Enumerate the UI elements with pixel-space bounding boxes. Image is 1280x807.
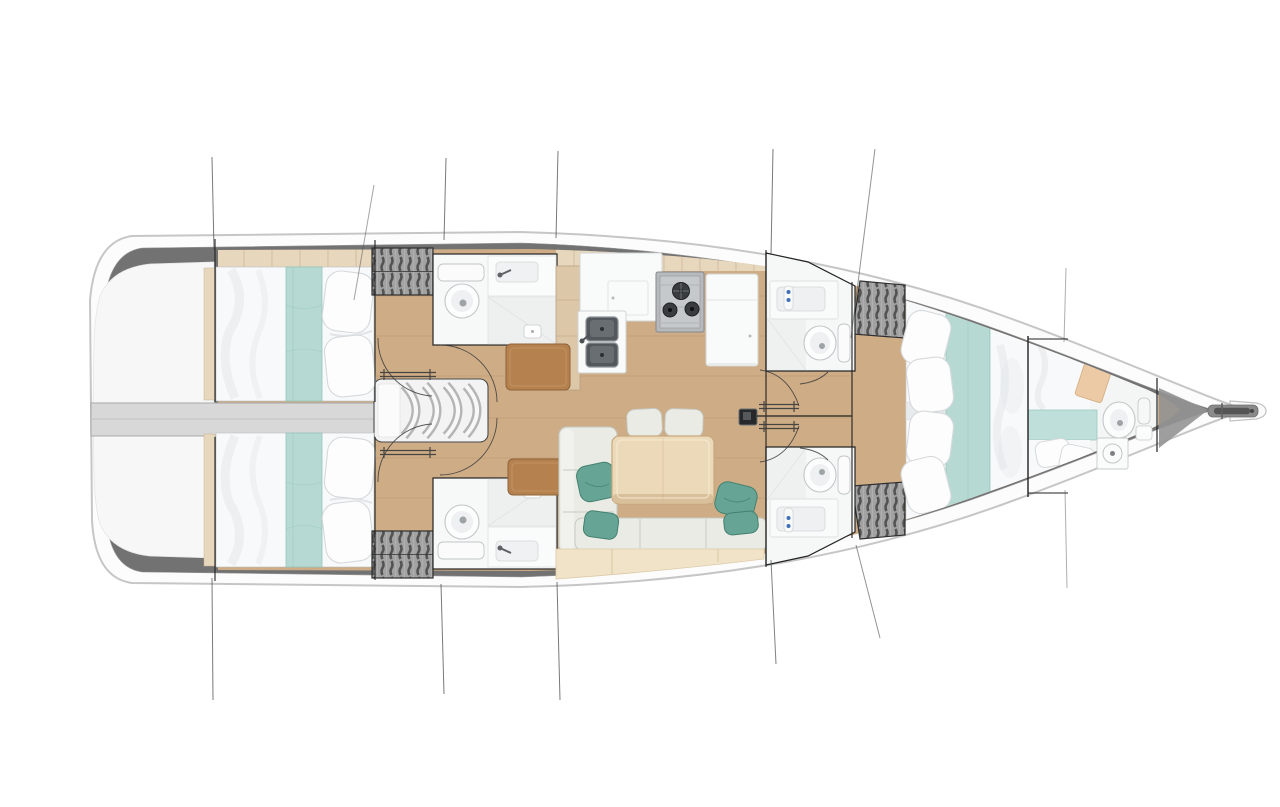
fridge [706,274,758,366]
wardrobe-aft-top [372,248,433,295]
galley-sink [578,311,626,373]
anchor-windlass [1208,403,1258,419]
shower [767,318,806,370]
saloon-table [612,436,714,504]
stove [656,272,704,332]
chart-table [506,344,570,390]
yacht-floor-plan [0,0,1280,807]
aft-head [433,254,557,345]
aft-cabin-berth [204,267,377,401]
bow-washbasin [1136,426,1152,440]
washbasin [488,256,556,296]
mast-step [739,409,757,425]
floor-plan-canvas [0,0,1280,807]
toilet [804,324,850,362]
shower-tray [1097,438,1128,469]
wardrobe-fwd-bottom [852,482,905,539]
washbasin [770,281,838,319]
engine-corridor [91,403,377,436]
shower [488,297,556,344]
chart-seat [508,459,566,495]
wardrobe-fwd-top [852,281,905,338]
companionway-steps [374,379,488,442]
bow-cabin [1028,300,1208,520]
wardrobe-aft-bottom [372,531,433,578]
